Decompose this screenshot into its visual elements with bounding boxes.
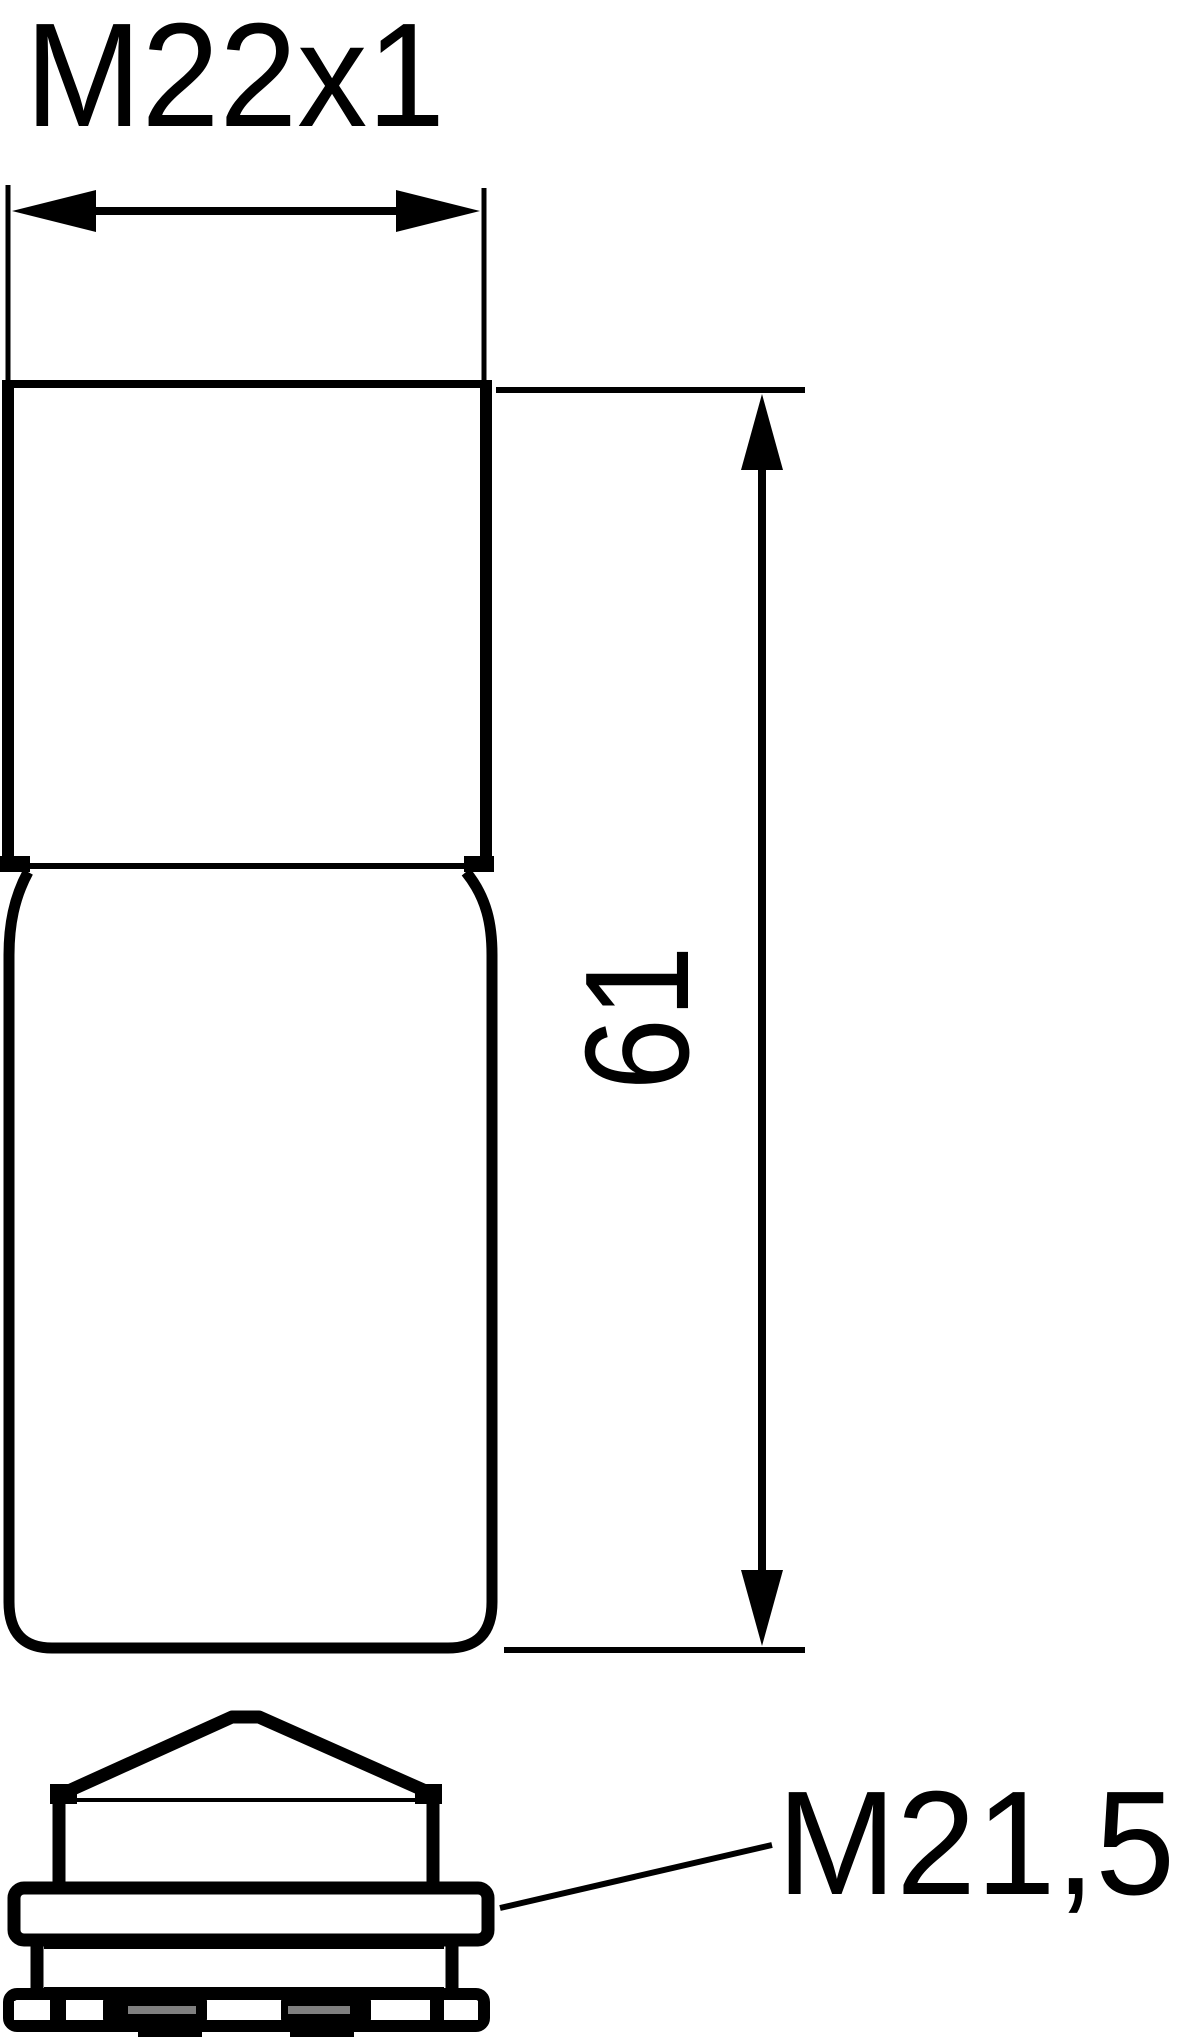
rim-foot-left [138,2020,202,2037]
arrowhead-up-icon [741,394,783,470]
arrowhead-right-icon [396,190,480,232]
top-width-dimension: M22x1 [8,0,484,384]
aerator-dome [64,1717,430,1793]
length-dimension: 61 [496,390,805,1650]
bottom-thread-callout: M21,5 [500,1761,1175,1926]
aerator-rim [9,1994,484,2026]
arrowhead-left-icon [12,190,96,232]
aerator-flange [14,1888,488,1940]
aerator-insert [9,1717,488,2037]
rim-foot-right [290,2020,354,2037]
rim-notch-right [446,2001,478,2020]
bottom-thread-label: M21,5 [777,1761,1175,1926]
body-lower-sleeve [9,872,492,1648]
body-length-label: 61 [555,946,720,1091]
leader-line [500,1845,772,1908]
part-drawing: M22x1 61 [0,0,1181,2037]
rim-notch-left [14,2001,48,2020]
rim-separator-right [430,1998,444,2024]
arrowhead-down-icon [741,1570,783,1646]
sleeve-outline [9,872,492,1648]
rim-slot-left [128,2006,196,2014]
body-upper-nut [0,380,494,872]
technical-drawing-canvas: M22x1 61 [0,0,1181,2037]
top-thread-label: M22x1 [25,0,445,158]
rim-slot-right [288,2006,350,2014]
rim-separator-left [50,1998,66,2024]
